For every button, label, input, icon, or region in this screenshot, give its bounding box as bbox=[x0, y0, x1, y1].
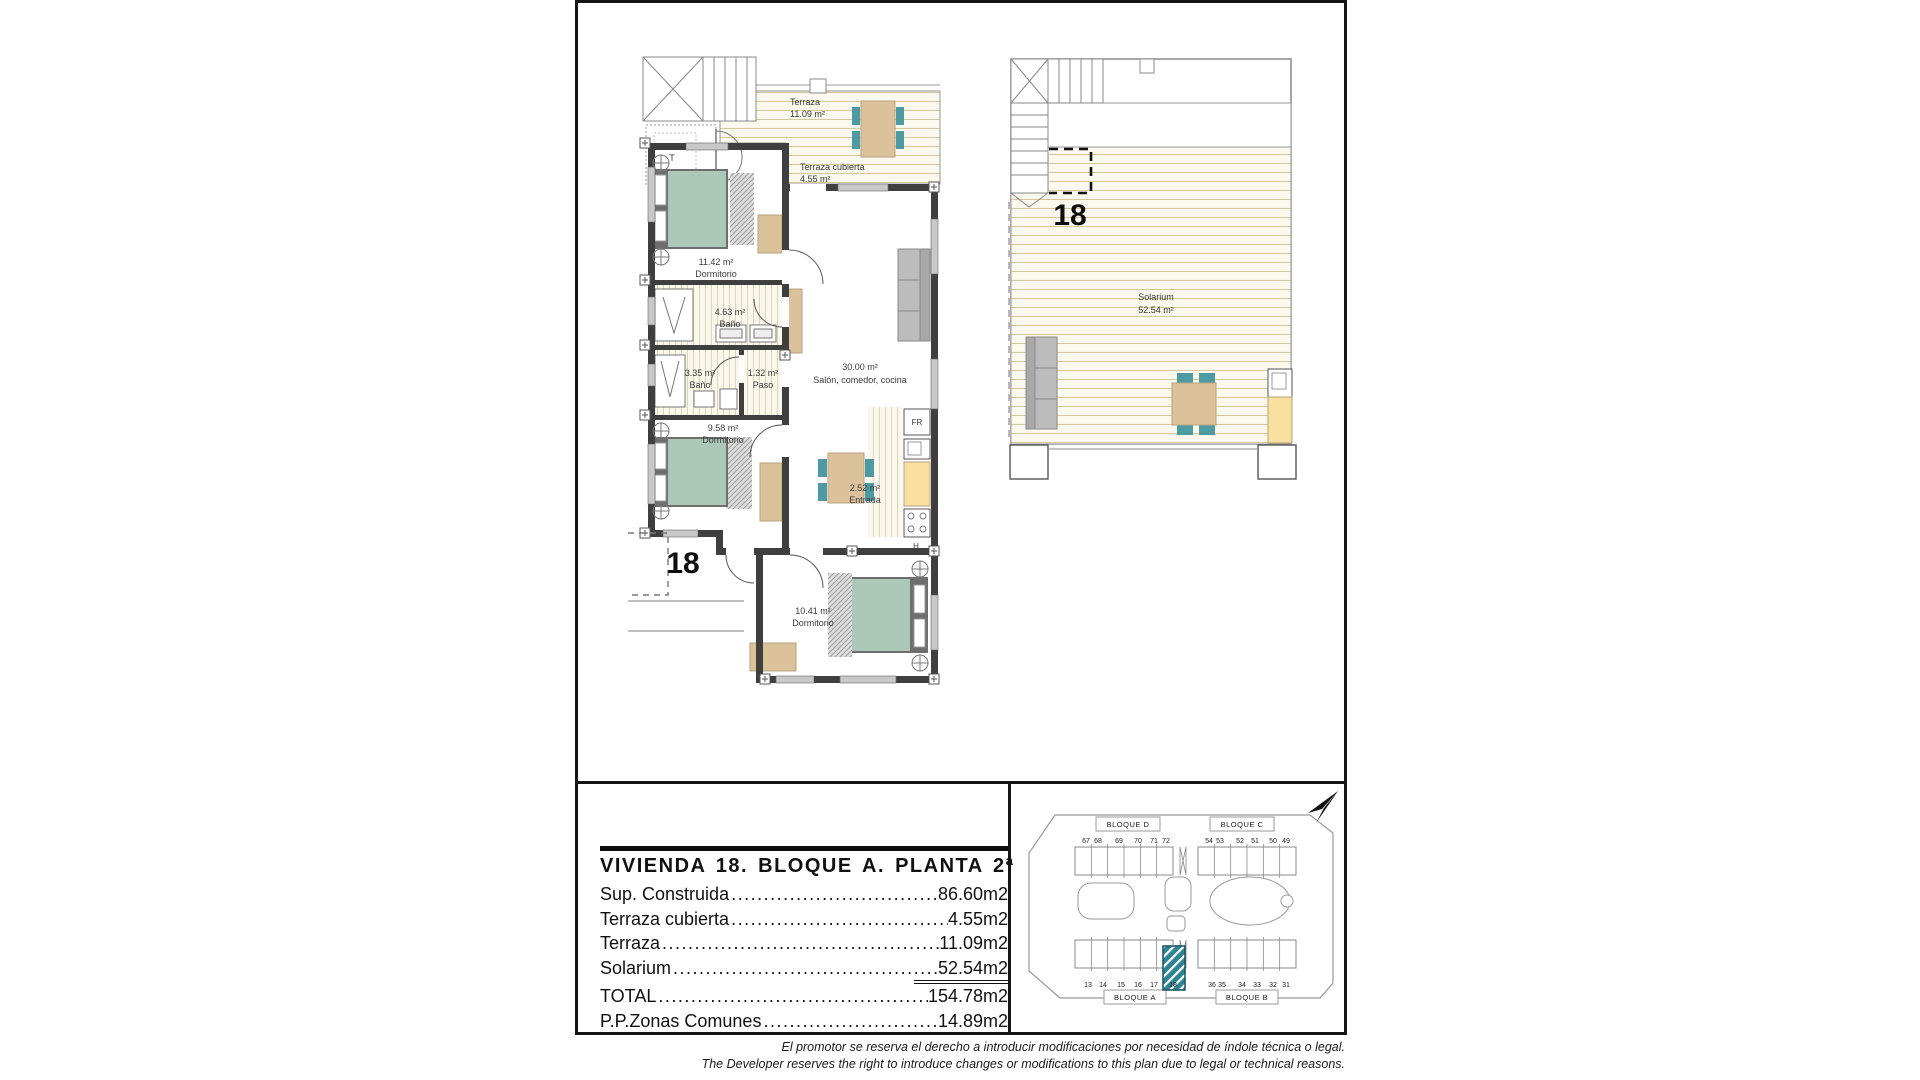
row-value: 86.60m2 bbox=[938, 882, 1008, 907]
terraza-name: Terraza bbox=[790, 97, 820, 107]
dormitorio3-area: 10.41 m² bbox=[795, 606, 831, 616]
dining-table bbox=[1172, 383, 1216, 425]
pool-left bbox=[1078, 883, 1134, 919]
kitchen-appliances: FR H bbox=[904, 409, 930, 551]
site-unit-number: 31 bbox=[1282, 982, 1290, 989]
sofa bbox=[898, 249, 920, 341]
dormitorio2-area: 9.58 m² bbox=[708, 423, 739, 433]
leader-dots: ........................................… bbox=[761, 1009, 938, 1034]
sheet-frame: T bbox=[575, 0, 1347, 1035]
chimney-notch bbox=[810, 79, 826, 93]
window-plus-marker bbox=[760, 674, 770, 684]
salon-name: Salón, comedor, cocina bbox=[813, 375, 907, 385]
row-label: Terraza cubierta bbox=[600, 907, 729, 932]
salon-area: 30.00 m² bbox=[842, 362, 878, 372]
site-unit-number: 54 bbox=[1205, 838, 1213, 845]
disclaimer-en: The Developer reserves the right to intr… bbox=[575, 1056, 1345, 1073]
site-unit-number: 50 bbox=[1269, 838, 1277, 845]
terraza-cubierta-area: 4.55 m² bbox=[800, 174, 831, 184]
dormitorio2-furniture bbox=[652, 437, 782, 521]
paso-area: 1.32 m² bbox=[748, 368, 779, 378]
dormitorio3-name: Dormitorio bbox=[792, 618, 834, 628]
dormitorio1-area: 11.42 m² bbox=[699, 257, 734, 267]
main-floor-plan: T bbox=[628, 39, 948, 701]
site-unit-number: 67 bbox=[1082, 838, 1090, 845]
solarium-plan: 18 Solarium 52.54 m² bbox=[996, 47, 1316, 487]
bloque-c-label: BLOQUE C bbox=[1221, 820, 1264, 829]
entrada-area: 2.52 m² bbox=[850, 483, 881, 493]
disclaimer: El promotor se reserva el derecho a intr… bbox=[575, 1039, 1345, 1072]
terraza-area: 11.09 m² bbox=[790, 109, 825, 119]
bano2-area: 3.35 m² bbox=[685, 368, 716, 378]
bano1-area: 4.63 m² bbox=[715, 307, 746, 317]
table-top-rule bbox=[600, 846, 1008, 851]
counter bbox=[1268, 397, 1292, 443]
row-label: TOTAL bbox=[600, 984, 656, 1009]
site-unit-number: 17 bbox=[1150, 982, 1158, 989]
horizontal-divider bbox=[578, 781, 1344, 784]
paso-name: Paso bbox=[753, 380, 774, 390]
window-plus-marker bbox=[929, 182, 939, 192]
bloque-d-label: BLOQUE D bbox=[1107, 820, 1150, 829]
area-table-row: Solarium................................… bbox=[600, 956, 1008, 985]
area-table-row: Terraza cubierta........................… bbox=[600, 907, 1008, 932]
rug bbox=[730, 173, 754, 245]
bano2-name: Baño bbox=[689, 380, 710, 390]
site-unit-number: 52 bbox=[1236, 838, 1244, 845]
wardrobe bbox=[758, 215, 782, 253]
bano1-name: Baño bbox=[719, 319, 740, 329]
row-label: Terraza bbox=[600, 931, 660, 956]
leader-dots: ........................................… bbox=[729, 907, 948, 932]
area-table-rows: Sup. Construida.........................… bbox=[600, 882, 1008, 1033]
row-value: 52.54m2 bbox=[914, 956, 1008, 985]
area-table-row: Sup. Construida.........................… bbox=[600, 882, 1008, 907]
area-table-row: P.P.Zonas Comunes.......................… bbox=[600, 1009, 1008, 1034]
hall-cabinet bbox=[788, 289, 802, 353]
area-table: VIVIENDA 18. BLOQUE A. PLANTA 2ª Sup. Co… bbox=[600, 846, 1008, 1033]
row-value: 154.78m2 bbox=[928, 984, 1008, 1009]
solarium-unit-number: 18 bbox=[1053, 199, 1086, 232]
site-unit-number: 34 bbox=[1238, 982, 1246, 989]
solarium-area: 52.54 m² bbox=[1138, 305, 1174, 315]
window-plus-marker bbox=[640, 275, 650, 285]
row-label: Sup. Construida bbox=[600, 882, 729, 907]
fridge-label: FR bbox=[912, 418, 923, 427]
site-unit-number: 71 bbox=[1150, 838, 1158, 845]
window-plus-marker bbox=[929, 546, 939, 556]
support-pillars bbox=[1010, 445, 1296, 479]
site-unit-number: 35 bbox=[1218, 982, 1226, 989]
site-unit-number: 70 bbox=[1134, 838, 1142, 845]
chimney-notch bbox=[1140, 59, 1154, 73]
dormitorio1-furniture bbox=[652, 169, 782, 253]
site-unit-number: 18 bbox=[1169, 982, 1177, 989]
site-unit-number: 53 bbox=[1216, 838, 1224, 845]
site-unit-number: 15 bbox=[1117, 982, 1125, 989]
site-unit-number: 68 bbox=[1094, 838, 1102, 845]
pool-shapes bbox=[1078, 877, 1293, 931]
bloque-a-label: BLOQUE A bbox=[1114, 993, 1156, 1002]
pillow bbox=[655, 211, 666, 241]
site-unit-number: 33 bbox=[1253, 982, 1261, 989]
site-unit-number: 36 bbox=[1208, 982, 1216, 989]
window-plus-marker bbox=[640, 410, 650, 420]
dormitorio2-name: Dormitorio bbox=[702, 435, 744, 445]
pool-right bbox=[1210, 877, 1290, 925]
window-plus-marker bbox=[640, 340, 650, 350]
entrada-name: Entrada bbox=[849, 495, 881, 505]
area-table-row: Terraza.................................… bbox=[600, 931, 1008, 956]
site-unit-number: 32 bbox=[1269, 982, 1277, 989]
sofa bbox=[1035, 337, 1057, 429]
disclaimer-es: El promotor se reserva el derecho a intr… bbox=[575, 1039, 1345, 1056]
site-unit-number: 49 bbox=[1282, 838, 1290, 845]
roof-strip bbox=[1048, 103, 1291, 147]
window-plus-marker bbox=[780, 350, 790, 360]
dormitorio1-name: Dormitorio bbox=[695, 269, 737, 279]
site-unit-number: 69 bbox=[1115, 838, 1123, 845]
plan-sheet-page: T bbox=[0, 0, 1920, 1080]
pillow bbox=[655, 175, 666, 205]
area-table-row: TOTAL...................................… bbox=[600, 984, 1008, 1009]
main-plan-unit-number: 18 bbox=[666, 547, 699, 580]
solarium-name: Solarium bbox=[1138, 292, 1174, 302]
row-label: P.P.Zonas Comunes bbox=[600, 1009, 761, 1034]
leader-dots: ........................................… bbox=[729, 882, 938, 907]
site-unit-number: 14 bbox=[1099, 982, 1107, 989]
leader-dots: ........................................… bbox=[656, 984, 928, 1009]
site-unit-number: 13 bbox=[1084, 982, 1092, 989]
storage-label: T bbox=[669, 153, 675, 163]
leader-dots: ........................................… bbox=[660, 931, 939, 956]
row-label: Solarium bbox=[600, 956, 671, 981]
table-title: VIVIENDA 18. BLOQUE A. PLANTA 2ª bbox=[600, 855, 1008, 878]
site-unit-number: 16 bbox=[1134, 982, 1142, 989]
north-arrow-icon bbox=[1304, 789, 1340, 825]
window-plus-marker bbox=[847, 546, 857, 556]
site-unit-number: 51 bbox=[1251, 838, 1259, 845]
bed-mattress bbox=[668, 171, 726, 247]
vertical-divider bbox=[1008, 781, 1011, 1032]
site-unit-number: 72 bbox=[1162, 838, 1170, 845]
row-value: 4.55m2 bbox=[948, 907, 1008, 932]
dormitorio3-furniture bbox=[750, 573, 928, 671]
window-plus-marker bbox=[640, 138, 650, 148]
row-value: 14.89m2 bbox=[938, 1009, 1008, 1034]
terraza-cubierta-name: Terraza cubierta bbox=[800, 162, 865, 172]
bloque-b-label: BLOQUE B bbox=[1226, 993, 1268, 1002]
counter bbox=[904, 462, 930, 506]
leader-dots: ........................................… bbox=[671, 956, 938, 981]
staircase bbox=[643, 57, 756, 121]
window-plus-marker bbox=[929, 674, 939, 684]
site-plan: BLOQUE D BLOQUE C BLOQUE A BLOQUE B bbox=[1014, 788, 1344, 1033]
row-value: 11.09m2 bbox=[939, 931, 1008, 956]
